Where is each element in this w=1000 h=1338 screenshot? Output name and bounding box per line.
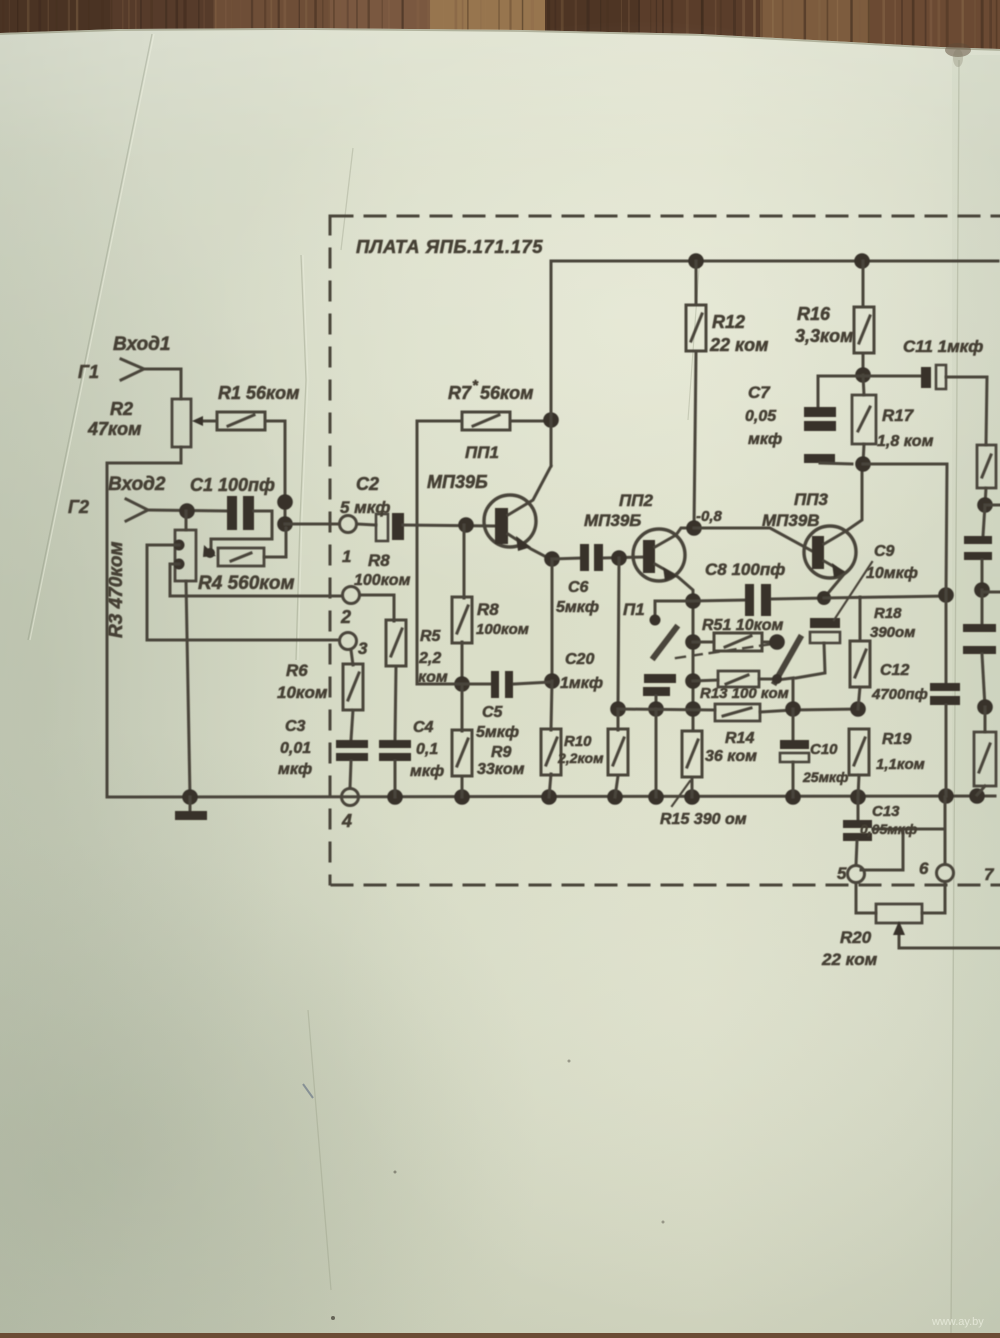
- svg-text:C4: C4: [413, 719, 434, 736]
- svg-text:R51 10ком: R51 10ком: [702, 617, 783, 634]
- svg-text:R18: R18: [874, 605, 902, 622]
- svg-text:390ом: 390ом: [870, 624, 915, 641]
- svg-text:C7: C7: [748, 383, 771, 402]
- svg-text:C13: C13: [872, 803, 900, 820]
- svg-text:ПП1: ПП1: [465, 443, 499, 462]
- svg-text:R10: R10: [564, 733, 592, 750]
- svg-text:R20: R20: [840, 928, 872, 947]
- svg-text:C9: C9: [874, 543, 895, 560]
- svg-text:мкф: мкф: [748, 431, 782, 448]
- svg-text:-0,8: -0,8: [696, 508, 723, 525]
- svg-text:1,1ком: 1,1ком: [876, 756, 925, 773]
- svg-text:5мкф: 5мкф: [476, 724, 519, 741]
- svg-text:ком: ком: [418, 669, 448, 686]
- svg-text:3: 3: [358, 639, 368, 658]
- svg-text:C10: C10: [810, 741, 838, 758]
- svg-text:0,05: 0,05: [745, 408, 777, 425]
- svg-text:5 мкф: 5 мкф: [340, 498, 390, 517]
- svg-text:R9: R9: [491, 744, 512, 761]
- svg-text:R8: R8: [477, 600, 499, 619]
- svg-text:ПП3: ПП3: [794, 490, 828, 509]
- svg-text:22 ком: 22 ком: [709, 335, 768, 355]
- svg-text:П1: П1: [623, 600, 645, 619]
- svg-text:R5: R5: [420, 628, 442, 645]
- svg-text:2: 2: [340, 607, 351, 627]
- svg-text:R8: R8: [368, 551, 390, 570]
- svg-text:25мкф: 25мкф: [802, 769, 848, 785]
- svg-text:C20: C20: [565, 651, 594, 668]
- svg-text:1мкф: 1мкф: [560, 675, 603, 692]
- svg-text:10мкф: 10мкф: [866, 565, 918, 582]
- svg-text:36 ком: 36 ком: [705, 748, 757, 765]
- svg-text:R19: R19: [882, 731, 911, 748]
- svg-text:C1 100пф: C1 100пф: [190, 475, 275, 495]
- svg-text:3,3ком: 3,3ком: [795, 326, 853, 346]
- svg-text:Г1: Г1: [78, 362, 99, 382]
- svg-text:33ком: 33ком: [477, 761, 525, 778]
- svg-text:мкф: мкф: [410, 763, 444, 780]
- svg-text:22 ком: 22 ком: [821, 950, 878, 969]
- svg-text:56ком: 56ком: [480, 383, 533, 403]
- svg-text:100ком: 100ком: [354, 572, 411, 589]
- svg-text:R15 390 ом: R15 390 ом: [660, 811, 747, 828]
- svg-text:R7: R7: [448, 383, 472, 403]
- svg-text:10ком: 10ком: [277, 683, 328, 702]
- svg-text:1,8 ком: 1,8 ком: [877, 433, 934, 450]
- svg-text:47ком: 47ком: [87, 419, 141, 439]
- svg-text:www.ay.by: www.ay.by: [931, 1316, 984, 1328]
- svg-text:R14: R14: [725, 730, 754, 747]
- svg-text:Г2: Г2: [68, 497, 89, 517]
- svg-text:ПЛАТА ЯПБ.171.175: ПЛАТА ЯПБ.171.175: [356, 236, 543, 257]
- svg-text:R17: R17: [882, 406, 915, 425]
- svg-text:МП39В: МП39В: [762, 511, 820, 530]
- svg-text:4700пф: 4700пф: [871, 686, 928, 703]
- svg-text:7: 7: [984, 865, 995, 884]
- svg-text:МП39Б: МП39Б: [584, 511, 641, 530]
- svg-text:ПП2: ПП2: [619, 491, 653, 510]
- svg-text:4: 4: [341, 811, 352, 831]
- svg-text:Вход1: Вход1: [113, 334, 170, 355]
- svg-text:Вход2: Вход2: [108, 474, 166, 495]
- svg-text:1: 1: [342, 547, 351, 566]
- svg-text:0,1: 0,1: [416, 741, 438, 758]
- svg-text:C3: C3: [285, 718, 306, 735]
- svg-text:0,01: 0,01: [280, 740, 311, 757]
- svg-text:мкф: мкф: [278, 761, 312, 778]
- svg-text:R4 560ком: R4 560ком: [198, 573, 295, 594]
- svg-text:C2: C2: [356, 474, 379, 494]
- svg-text:100ком: 100ком: [476, 621, 529, 638]
- svg-text:C8 100пф: C8 100пф: [705, 560, 785, 579]
- svg-text:R1 56ком: R1 56ком: [218, 383, 299, 403]
- svg-text:C12: C12: [880, 662, 909, 679]
- svg-text:5: 5: [837, 864, 847, 883]
- svg-text:5мкф: 5мкф: [556, 599, 599, 616]
- svg-text:R3 470ком: R3 470ком: [106, 541, 127, 638]
- svg-text:R2: R2: [110, 399, 133, 419]
- svg-text:R13 100 ком: R13 100 ком: [700, 685, 789, 702]
- svg-text:R16: R16: [797, 304, 831, 324]
- svg-text:R12: R12: [712, 312, 745, 332]
- svg-text:МП39Б: МП39Б: [427, 472, 488, 492]
- svg-text:2,2ком: 2,2ком: [557, 750, 604, 766]
- svg-text:C11 1мкф: C11 1мкф: [903, 337, 983, 356]
- svg-text:R6: R6: [286, 661, 308, 680]
- svg-text:2,2: 2,2: [418, 650, 441, 667]
- svg-text:6: 6: [919, 859, 929, 878]
- svg-text:C6: C6: [568, 579, 589, 596]
- svg-text:0,05мкф: 0,05мкф: [860, 821, 917, 837]
- svg-text:C5: C5: [482, 704, 504, 721]
